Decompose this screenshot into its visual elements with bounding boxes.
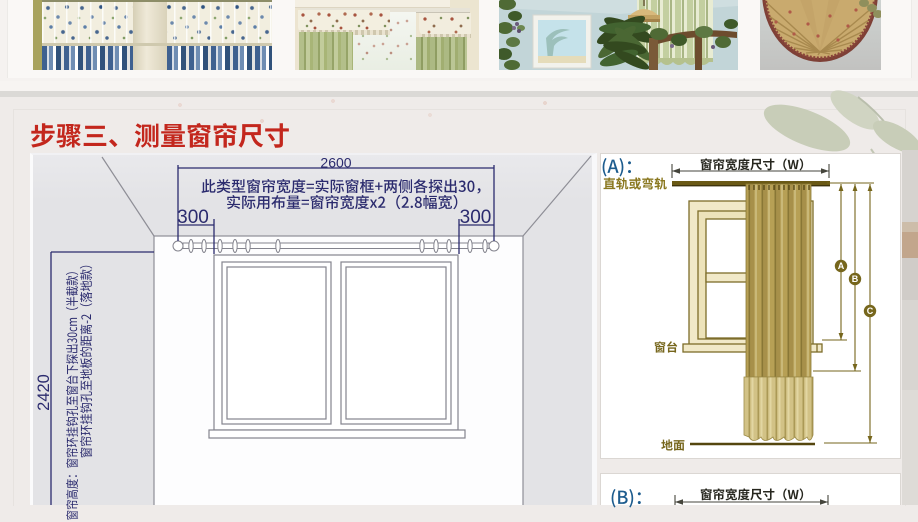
svg-text:300: 300 <box>177 207 209 228</box>
svg-text:2600: 2600 <box>320 155 351 171</box>
svg-text:C: C <box>867 306 874 316</box>
svg-text:B: B <box>852 274 859 284</box>
svg-text:A: A <box>838 261 845 271</box>
svg-text:2420: 2420 <box>35 374 53 411</box>
